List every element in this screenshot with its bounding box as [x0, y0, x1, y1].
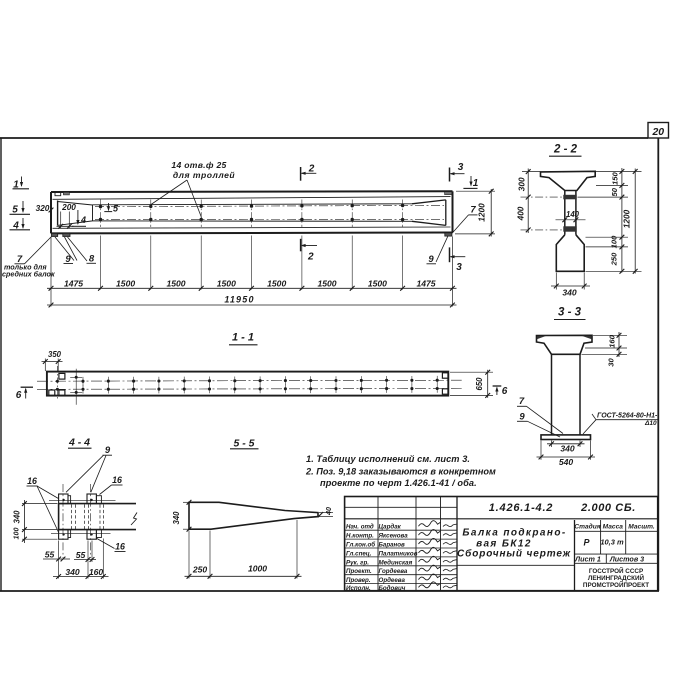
svg-text:Гордеева: Гордеева	[379, 568, 408, 575]
svg-text:2. Поз. 9,18 заказываются в ко: 2. Поз. 9,18 заказываются в конкретном	[305, 467, 496, 477]
svg-text:средних балок: средних балок	[2, 270, 55, 279]
svg-text:16: 16	[112, 475, 122, 485]
svg-text:55: 55	[45, 550, 55, 560]
svg-text:540: 540	[559, 457, 574, 467]
svg-text:1500: 1500	[116, 278, 135, 288]
svg-text:14 отв.ф 25: 14 отв.ф 25	[171, 160, 226, 170]
svg-text:250: 250	[192, 565, 208, 575]
svg-text:10,3 т: 10,3 т	[600, 538, 624, 547]
svg-text:Гл.кон.об: Гл.кон.об	[346, 542, 375, 549]
svg-text:ГОСТ-5264-80-Н1-: ГОСТ-5264-80-Н1-	[597, 413, 658, 420]
svg-text:30: 30	[607, 358, 616, 367]
svg-text:7: 7	[519, 396, 525, 407]
svg-text:340: 340	[560, 444, 575, 454]
svg-text:50: 50	[610, 187, 619, 196]
svg-text:55: 55	[76, 550, 86, 560]
svg-text:Палатников: Палатников	[379, 550, 418, 557]
svg-text:150: 150	[611, 171, 620, 184]
svg-text:1 - 1: 1 - 1	[232, 332, 254, 344]
svg-text:1500: 1500	[267, 278, 286, 288]
svg-text:проекте по черт 1.426.1-41 / о: проекте по черт 1.426.1-41 / оба.	[320, 478, 477, 488]
svg-text:Балка подкрано-: Балка подкрано-	[462, 528, 566, 539]
svg-text:Рук. гр.: Рук. гр.	[346, 559, 369, 566]
svg-text:Цардак: Цардак	[379, 524, 402, 531]
svg-text:320: 320	[36, 203, 50, 213]
svg-text:Лист 1: Лист 1	[574, 555, 601, 564]
svg-text:Бодович: Бодович	[379, 585, 406, 592]
svg-text:20: 20	[651, 126, 664, 138]
svg-text:1.426.1-4.2: 1.426.1-4.2	[489, 502, 553, 514]
svg-text:1500: 1500	[317, 278, 336, 288]
svg-text:16: 16	[115, 542, 125, 552]
svg-text:7: 7	[470, 205, 476, 216]
svg-text:3: 3	[458, 162, 464, 173]
svg-text:2 - 2: 2 - 2	[553, 144, 578, 156]
svg-text:Ордеева: Ордеева	[379, 577, 406, 584]
svg-text:1200: 1200	[622, 209, 632, 228]
svg-text:Исполн.: Исполн.	[346, 585, 371, 592]
svg-text:1500: 1500	[217, 278, 236, 288]
svg-text:Сборочный чертеж: Сборочный чертеж	[457, 548, 571, 560]
svg-text:1500: 1500	[166, 278, 185, 288]
svg-text:100: 100	[610, 235, 619, 248]
svg-text:Провер.: Провер.	[346, 577, 371, 584]
svg-text:340: 340	[13, 510, 22, 524]
svg-text:для троллей: для троллей	[173, 170, 236, 180]
svg-text:Баранов: Баранов	[379, 542, 406, 549]
svg-text:Δ10: Δ10	[644, 420, 657, 427]
svg-text:3: 3	[456, 262, 462, 273]
svg-text:250: 250	[610, 252, 619, 266]
svg-text:3 - 3: 3 - 3	[558, 307, 582, 319]
svg-text:650: 650	[475, 377, 484, 391]
svg-text:1: 1	[473, 178, 479, 189]
svg-text:340: 340	[172, 511, 181, 525]
svg-text:140: 140	[566, 210, 580, 219]
svg-text:4 - 4: 4 - 4	[68, 437, 90, 449]
svg-text:ГОССТРОЙ СССР: ГОССТРОЙ СССР	[589, 566, 643, 575]
svg-text:Листов 3: Листов 3	[609, 555, 644, 564]
svg-text:1475: 1475	[416, 278, 435, 288]
svg-text:340: 340	[562, 288, 577, 298]
svg-text:16: 16	[27, 476, 37, 486]
svg-text:1475: 1475	[64, 278, 83, 288]
svg-text:Яксенова: Яксенова	[378, 533, 409, 540]
svg-text:400: 400	[516, 206, 526, 221]
svg-text:11950: 11950	[224, 294, 254, 304]
svg-text:100: 100	[12, 528, 21, 540]
svg-text:Проект.: Проект.	[346, 568, 372, 575]
svg-text:Стадия: Стадия	[574, 523, 600, 531]
svg-text:6: 6	[502, 386, 508, 397]
svg-text:Р: Р	[583, 538, 590, 548]
svg-text:40: 40	[324, 507, 333, 516]
svg-text:Гл.спец.: Гл.спец.	[346, 550, 372, 557]
svg-text:2: 2	[307, 252, 314, 263]
svg-text:2.000 СБ.: 2.000 СБ.	[580, 502, 636, 514]
svg-text:1. Таблицу исполнений см. лис: 1. Таблицу исполнений см. лист 3.	[306, 454, 470, 464]
svg-text:Мединская: Мединская	[379, 559, 413, 566]
svg-text:160: 160	[608, 334, 617, 347]
svg-text:2: 2	[308, 164, 315, 175]
svg-text:350: 350	[48, 350, 62, 359]
svg-text:9: 9	[105, 445, 111, 456]
svg-text:300: 300	[517, 177, 527, 191]
svg-text:1200: 1200	[477, 203, 487, 222]
svg-text:1500: 1500	[368, 278, 387, 288]
svg-text:340: 340	[65, 567, 80, 577]
svg-text:ПРОМСТРОЙПРОЕКТ: ПРОМСТРОЙПРОЕКТ	[583, 580, 649, 589]
svg-text:Масшт.: Масшт.	[628, 524, 655, 531]
svg-text:4: 4	[80, 215, 86, 225]
svg-text:ЛЕНИНГРАДСКИЙ: ЛЕНИНГРАДСКИЙ	[588, 573, 645, 582]
svg-text:200: 200	[61, 202, 76, 212]
svg-text:6: 6	[16, 390, 22, 401]
svg-text:Нач. отд: Нач. отд	[346, 524, 374, 531]
svg-text:5 - 5: 5 - 5	[233, 437, 254, 449]
svg-text:1000: 1000	[248, 564, 267, 574]
svg-text:160: 160	[89, 567, 104, 577]
svg-text:Масса: Масса	[603, 524, 624, 531]
svg-text:Н.контр.: Н.контр.	[346, 533, 374, 540]
